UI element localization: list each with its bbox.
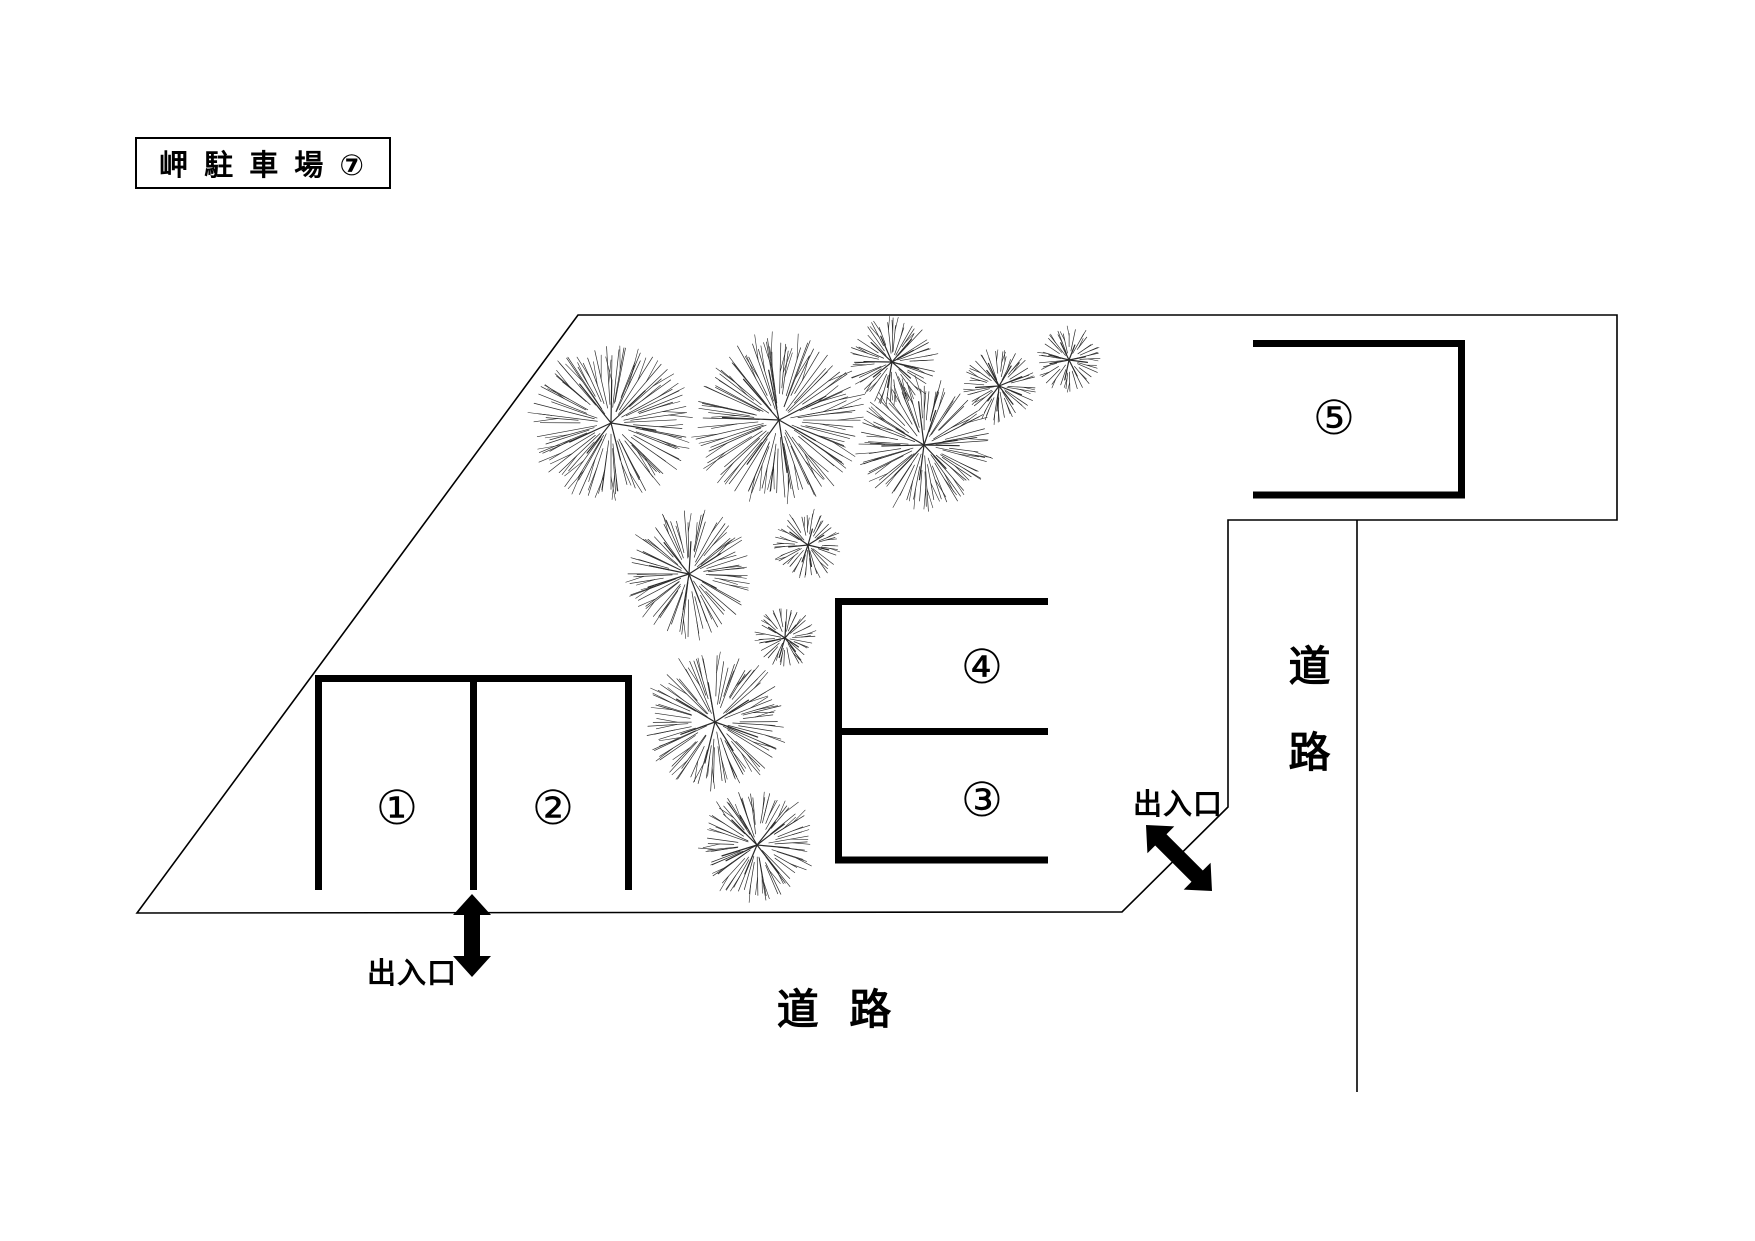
spot-label-3: ③	[940, 758, 1024, 842]
spot-label-1: ①	[355, 766, 439, 850]
tree-icon	[626, 510, 750, 640]
tree-icon	[755, 609, 816, 666]
entrance-label-right: 出入口	[1133, 781, 1223, 823]
tree-icon	[1038, 326, 1101, 392]
spot-label-5: ⑤	[1292, 376, 1376, 460]
tree-icon	[773, 509, 840, 578]
entrance-arrow-icon	[453, 894, 491, 977]
entrance-label-bottom: 出入口	[367, 950, 457, 992]
tree-icon	[528, 346, 693, 500]
tree-icon	[698, 792, 811, 902]
spot-label-4: ④	[940, 625, 1024, 709]
entrance-arrow-icon	[1146, 825, 1212, 891]
road-label-bottom: 道 路	[777, 976, 900, 1037]
road-label-right: 道路	[1276, 644, 1337, 816]
parking-map-canvas: 岬 駐 車 場 ⑦ 道路 道 路 出入口 出入口 ①②③④⑤	[0, 0, 1755, 1241]
title-box: 岬 駐 車 場 ⑦	[135, 137, 391, 189]
tree-icon	[647, 652, 785, 791]
tree-icon	[851, 316, 938, 405]
title-text: 岬 駐 車 場 ⑦	[159, 142, 367, 184]
tree-icon	[856, 375, 993, 511]
spot-label-2: ②	[511, 766, 595, 850]
tree-icon	[692, 332, 865, 504]
